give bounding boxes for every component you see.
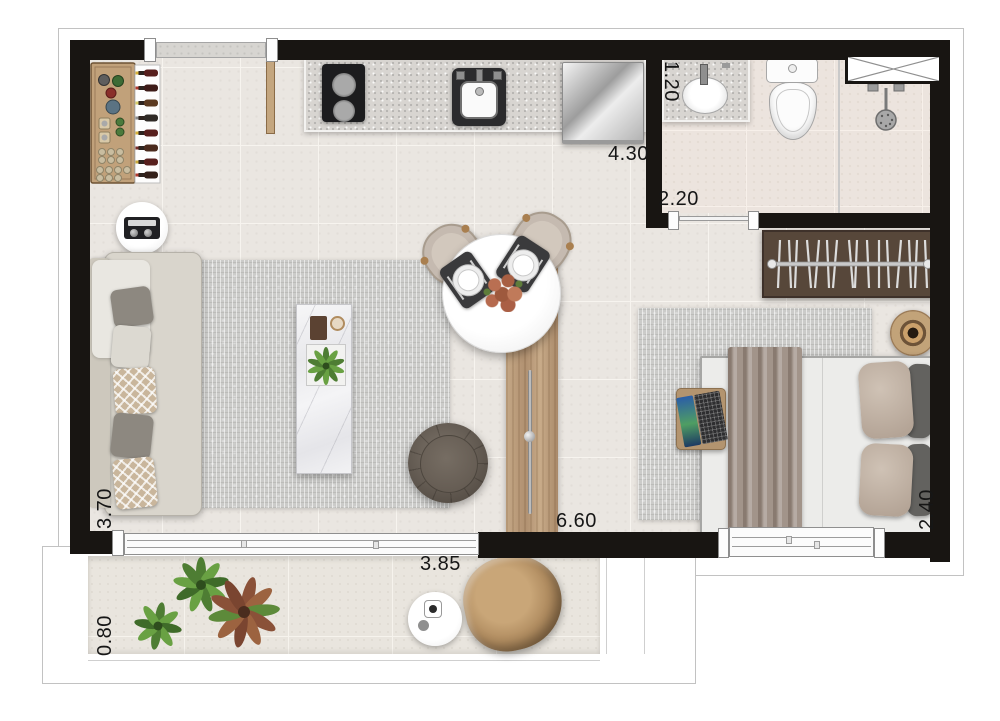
balcony-plants-icon <box>96 552 286 664</box>
glass-line <box>127 540 476 541</box>
laptop-icon <box>676 391 728 448</box>
balcony-side-table <box>408 592 462 646</box>
toilet-tank <box>766 58 818 83</box>
door-handle <box>373 541 379 549</box>
bar-cabinet <box>90 60 170 186</box>
entry-door-leaf <box>266 58 275 134</box>
throw-blanket <box>728 347 802 536</box>
flush-button-icon <box>788 64 797 73</box>
book-icon <box>310 316 327 340</box>
wardrobe <box>762 230 938 298</box>
glass-line <box>732 537 871 538</box>
bed-pillow <box>858 443 914 518</box>
pouf <box>408 423 488 503</box>
table-plant-icon <box>306 346 346 386</box>
wall-bottom-right <box>878 532 950 558</box>
sofa-pillow <box>110 285 155 328</box>
sofa-pillow <box>110 412 154 460</box>
door-meeting-stile <box>241 540 247 548</box>
entry-threshold <box>156 42 266 58</box>
toilet-seat <box>776 89 810 132</box>
flower-centerpiece-icon <box>482 272 524 312</box>
coffee-cup-icon <box>429 605 437 613</box>
radio-knob-icon <box>144 229 152 237</box>
shaft-x-icon <box>848 57 939 81</box>
dim-bedroom-width: 2.40 <box>917 489 937 530</box>
balcony-door-jamb <box>112 530 124 556</box>
ventilation-shaft <box>845 54 942 84</box>
radio-icon <box>124 217 160 239</box>
refrigerator <box>562 62 644 144</box>
entry-jamb-right <box>266 38 278 62</box>
bathroom-sliding-door <box>679 216 749 221</box>
sofa-pillow <box>112 367 157 416</box>
coaster-icon <box>418 620 429 631</box>
wall-bathroom-south-right <box>758 213 930 228</box>
dim-bathroom-width: 1.20 <box>661 61 681 102</box>
bath-jamb-left <box>668 211 679 230</box>
radio-side-table <box>116 202 168 254</box>
bath-jamb-right <box>748 211 759 230</box>
glass-line <box>732 546 871 547</box>
radio-dial <box>128 220 156 226</box>
door-track <box>528 370 532 514</box>
balcony-rail-line <box>606 556 607 654</box>
cooktop <box>322 64 365 122</box>
dim-kitchen-length: 4.30 <box>608 144 649 164</box>
dim-balcony-length: 3.85 <box>420 554 461 574</box>
radio-knob-icon <box>130 229 138 237</box>
soap-dish-icon <box>722 63 730 68</box>
wall-right <box>930 40 950 562</box>
shower-glass-partition <box>838 58 840 213</box>
burner-icon <box>333 100 355 122</box>
vanity-faucet-icon <box>700 64 708 85</box>
dim-hall-width: 2.20 <box>658 189 699 209</box>
balcony-sliding-door <box>124 533 479 555</box>
window-latch <box>814 541 820 549</box>
balcony-rail-line <box>644 556 645 654</box>
pouf-top <box>420 435 478 493</box>
shower-icon <box>864 82 924 140</box>
sofa-pillow <box>110 324 152 369</box>
dim-interior-length: 6.60 <box>556 511 597 531</box>
wall-left-foot <box>70 531 116 554</box>
bed-pillow <box>857 360 914 439</box>
wall-bottom-center <box>478 532 728 558</box>
window-meeting-stile <box>786 536 792 544</box>
window-jamb-left <box>718 528 729 558</box>
dim-balcony-depth: 0.80 <box>95 615 115 656</box>
door-handle-icon <box>524 431 535 442</box>
chair-armrest-icon <box>521 212 532 223</box>
wall-left <box>70 40 90 554</box>
bed-seam <box>822 358 823 534</box>
round-tray-icon <box>330 316 345 331</box>
entry-jamb-left <box>144 38 156 62</box>
bedroom-window <box>729 527 874 557</box>
faucet-handle-icon <box>493 71 502 80</box>
hanger-rail-icon <box>764 232 936 296</box>
sofa-pillow <box>112 456 159 510</box>
faucet-handle-icon <box>456 71 465 80</box>
burner-icon <box>332 73 356 97</box>
glass-line <box>127 547 476 548</box>
floor-plan: 4.30 2.20 1.20 3.70 6.60 2.40 3.85 0.80 <box>0 0 1000 721</box>
dim-living-width: 3.70 <box>95 488 115 529</box>
window-jamb-right <box>874 528 885 558</box>
sink-drain-icon <box>475 87 484 96</box>
kitchen-sink <box>452 68 506 126</box>
